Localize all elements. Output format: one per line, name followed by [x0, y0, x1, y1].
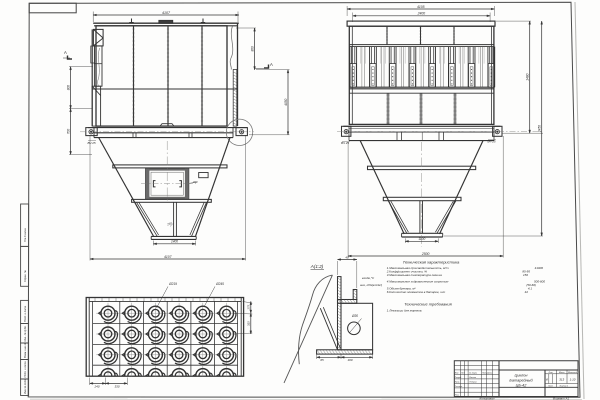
- svg-text:Техническая характеристика: Техническая характеристика: [403, 259, 460, 264]
- svg-text:313: 313: [559, 377, 564, 381]
- svg-text:A(1:2): A(1:2): [310, 264, 324, 269]
- svg-text:700: 700: [66, 129, 70, 135]
- svg-text:200: 200: [192, 180, 198, 184]
- svg-text:1480: 1480: [526, 73, 530, 80]
- svg-text:ВЧ 25: ВЧ 25: [88, 141, 96, 145]
- svg-text:Ø245: Ø245: [215, 282, 224, 286]
- svg-text:Масса: Масса: [559, 372, 565, 374]
- svg-text:Подп. и дата: Подп. и дата: [23, 361, 27, 378]
- svg-text:4105: 4105: [417, 5, 425, 9]
- svg-text:Ø30: Ø30: [351, 314, 358, 318]
- svg-text:Взам. инв.№: Взам. инв.№: [23, 342, 27, 358]
- svg-text:Лист: Лист: [547, 386, 553, 388]
- svg-text:4,1: 4,1: [528, 286, 533, 290]
- svg-text:Разраб.: Разраб.: [455, 377, 462, 379]
- svg-text:ЦБ-42: ЦБ-42: [516, 383, 528, 387]
- svg-text:A: A: [270, 62, 273, 67]
- svg-text:Копировал: Копировал: [480, 397, 495, 400]
- svg-text:№ докум.: № докум.: [469, 372, 478, 375]
- svg-text:Циклон: Циклон: [514, 373, 528, 377]
- svg-text:1.Лекальцы для моряков.: 1.Лекальцы для моряков.: [387, 309, 423, 313]
- svg-text:2450: 2450: [538, 125, 542, 133]
- svg-text:3.Максимальная температура г: 3.Максимальная температура газа на: [387, 273, 442, 277]
- svg-text:ние, кПа(кгс/м²): ние, кПа(кгс/м²): [360, 283, 382, 287]
- svg-text:315: 315: [247, 321, 251, 326]
- svg-text:Листов 1: Листов 1: [559, 386, 568, 388]
- svg-text:Дата: Дата: [486, 373, 492, 375]
- svg-text:Т.контр.: Т.контр.: [455, 386, 463, 388]
- svg-text:Тов.б заказ.: Тов.б заказ.: [23, 227, 27, 242]
- svg-text:Инв. № дубл.: Инв. № дубл.: [23, 325, 27, 341]
- svg-text:4050: 4050: [284, 98, 288, 105]
- svg-text:Пров.: Пров.: [455, 382, 460, 384]
- svg-text:входе,°С: входе,°С: [362, 276, 375, 280]
- svg-text:240: 240: [93, 384, 99, 388]
- svg-text:6.Количество элементов в ба: 6.Количество элементов в батарее, шт: [387, 290, 446, 294]
- svg-text:4107: 4107: [164, 255, 172, 259]
- svg-text:Иванов: Иванов: [470, 377, 476, 379]
- svg-text:Масштаб: Масштаб: [568, 372, 578, 374]
- svg-text:Инв.№ подл.: Инв.№ подл.: [23, 378, 27, 394]
- svg-text:Ø219: Ø219: [168, 282, 177, 286]
- svg-text:Подп. и дата: Подп. и дата: [23, 305, 27, 322]
- svg-text:40: 40: [345, 255, 349, 259]
- svg-text:И: И: [546, 378, 548, 382]
- svg-text:A: A: [64, 50, 67, 55]
- svg-text:160: 160: [347, 358, 352, 362]
- svg-text:1100: 1100: [418, 237, 425, 241]
- svg-text:4.Максимальное гидравлическое: 4.Максимальное гидравлическое сопротив-: [387, 280, 449, 284]
- svg-text:2400: 2400: [417, 12, 426, 16]
- svg-text:330: 330: [114, 384, 119, 388]
- svg-text:Лит.: Лит.: [547, 372, 553, 374]
- svg-text:42: 42: [525, 290, 529, 294]
- svg-text:Лст: Лст: [460, 373, 465, 375]
- svg-text:1:10: 1:10: [570, 377, 576, 381]
- svg-text:Батарейный: Батарейный: [509, 379, 533, 383]
- svg-text:800: 800: [66, 85, 70, 91]
- svg-text:175: 175: [247, 304, 251, 309]
- svg-text:150: 150: [523, 273, 528, 277]
- svg-text:Формат А1: Формат А1: [553, 397, 570, 400]
- svg-text:ВЧ 25: ВЧ 25: [488, 140, 496, 144]
- svg-text:Технические требования: Технические требования: [404, 301, 452, 306]
- svg-text:2500: 2500: [421, 252, 430, 256]
- svg-text:Справ. №: Справ. №: [23, 270, 27, 282]
- svg-text:4107: 4107: [162, 11, 171, 15]
- svg-text:Петров: Петров: [470, 382, 477, 384]
- svg-text:65: 65: [320, 358, 324, 362]
- svg-text:41000: 41000: [535, 266, 544, 270]
- svg-text:800: 800: [250, 46, 254, 52]
- svg-text:1400: 1400: [171, 240, 178, 244]
- svg-text:Утв.: Утв.: [455, 395, 460, 397]
